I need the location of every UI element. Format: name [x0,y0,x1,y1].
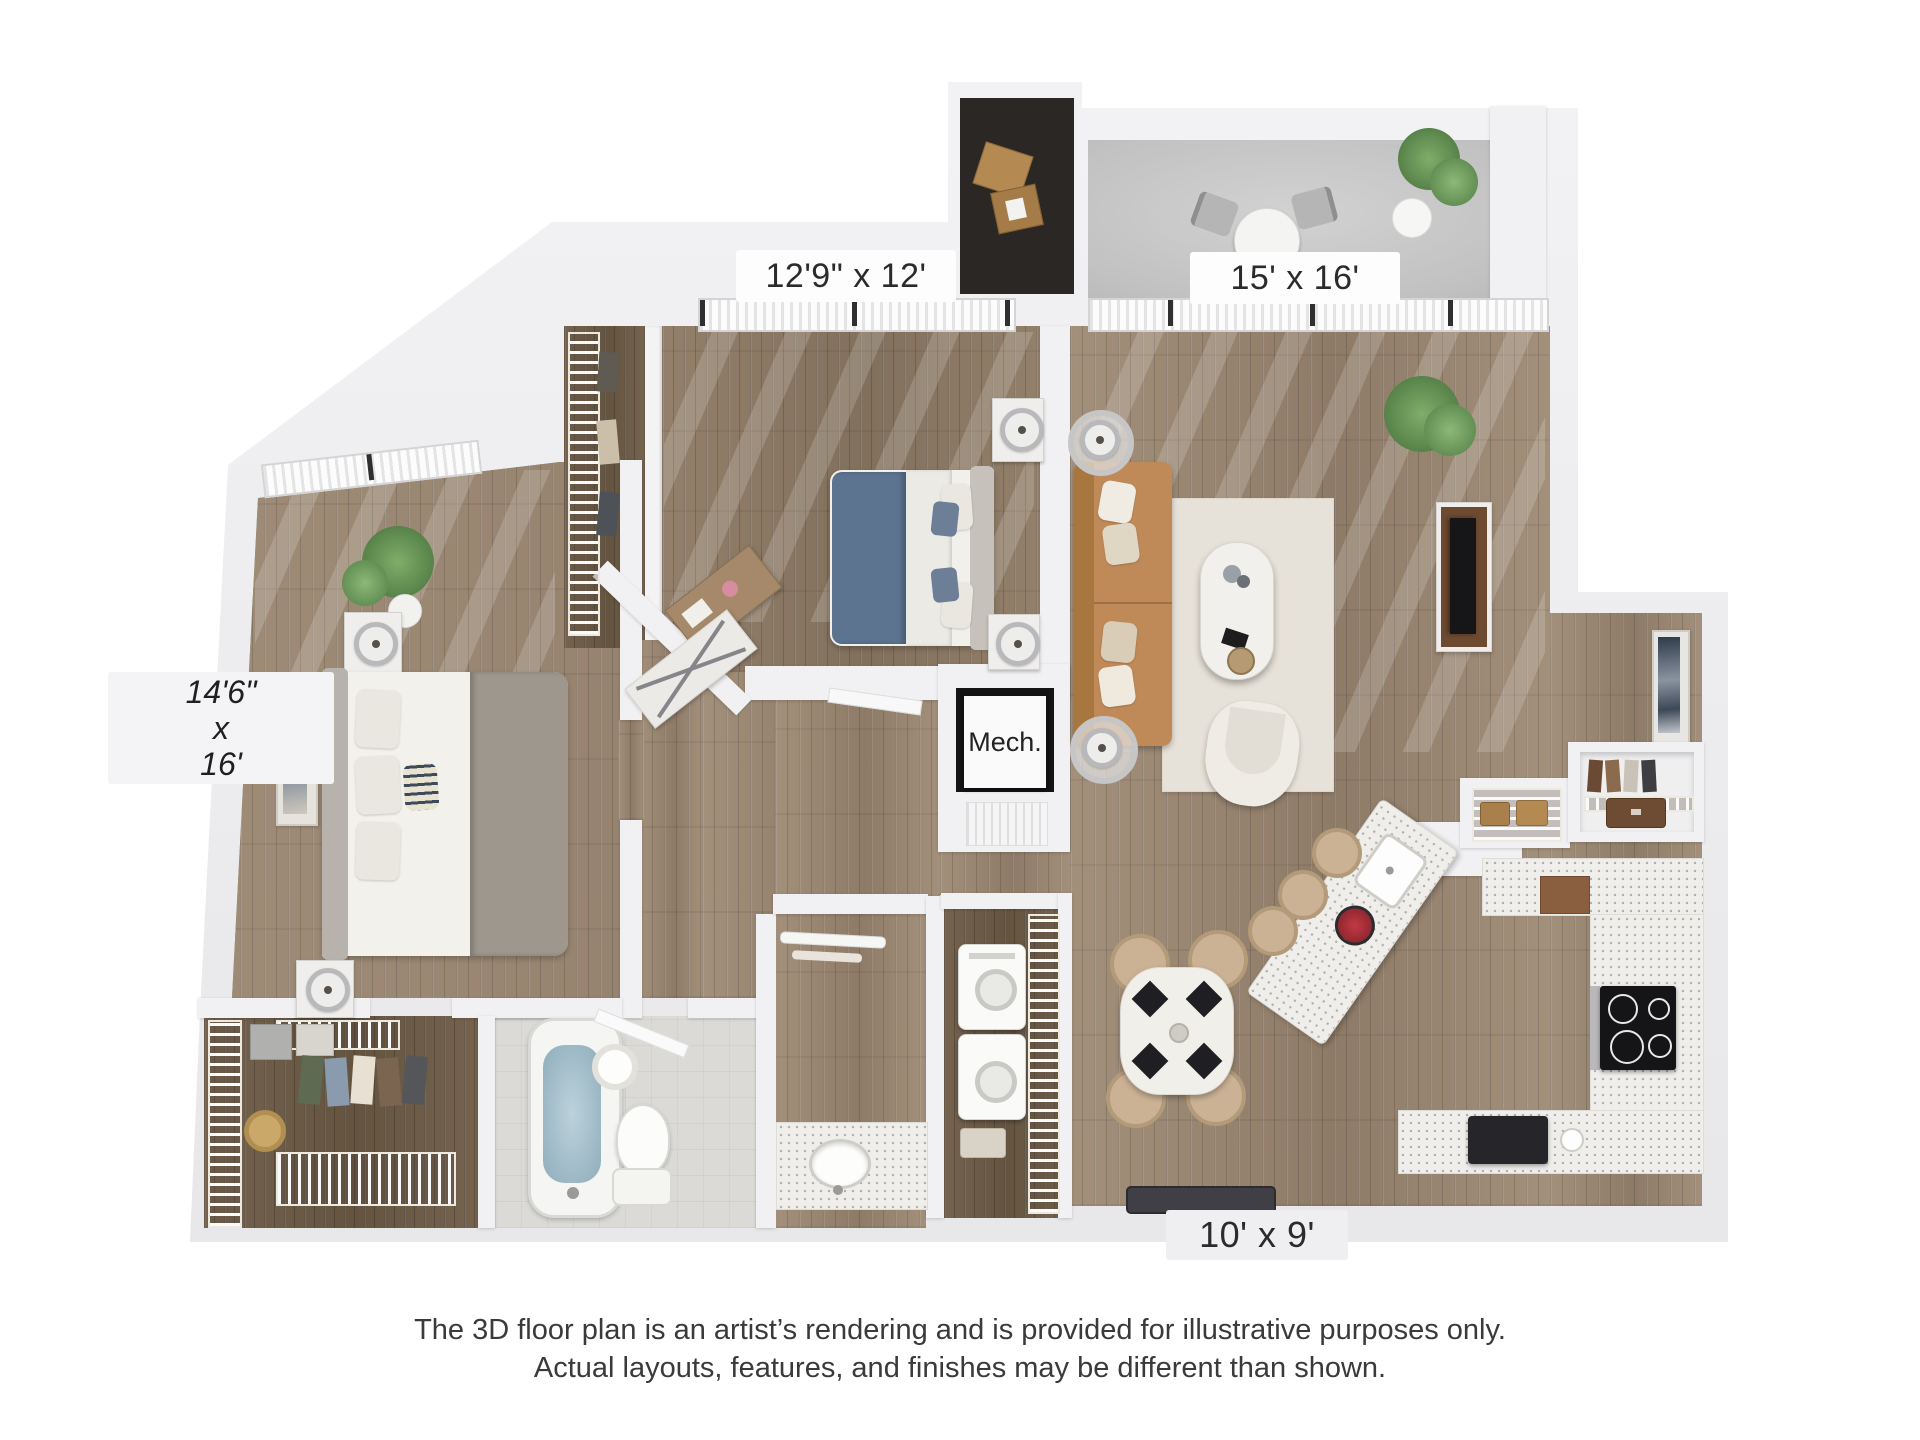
armchair-seat [1221,707,1285,778]
kitchen-counter-top-run [1482,858,1704,916]
bedroom2-blanket-blue [832,472,906,644]
tv-screen [1450,518,1476,634]
living-coffee-table [1200,542,1274,680]
walkin-hat [244,1110,286,1152]
pantry-shelf [1472,788,1562,842]
bedroom2-bed [830,470,994,646]
laundry-basket [960,1128,1006,1158]
master-bed [322,672,568,956]
dining-placemat [1186,981,1223,1018]
living-plant-leaves [1424,404,1476,456]
washer [958,944,1026,1030]
wall-closet-bath-divider [478,1016,495,1228]
entry-closet-interior [1580,752,1694,832]
wall-master-corridor-lower [620,820,642,1018]
walkin-clothes [350,1055,375,1104]
master-pillow [355,755,402,815]
burner [1648,998,1670,1020]
master-doorway-floor [618,720,644,820]
closet-clothes [1605,760,1621,793]
desk-flowers [719,578,741,600]
closet-clothes [1587,760,1603,793]
dining-centerpiece [1169,1023,1189,1043]
bedroom2-lamp-bottom [996,622,1040,666]
kitchen-counter-bottom-run [1398,1110,1704,1174]
master-dimension-label: 14'6" x 16' [108,672,334,784]
window-divider [366,454,374,480]
kitchen-sink [1351,831,1429,912]
sofa-pillow [1097,664,1136,708]
bedroom2-closet-shelf [568,332,600,636]
toilet-tank [612,1168,672,1206]
walkin-storage-box [296,1024,334,1056]
master-dimension-line2: x [186,710,257,746]
hall-to-living-floor [940,850,1072,895]
living-room-dimension-label: 15' x 16' [1190,252,1400,304]
walkin-clothes [376,1057,402,1107]
washer-panel [969,953,1015,959]
window-divider [852,300,857,326]
walkin-storage-box [250,1024,292,1060]
wall-bath-north-right [688,998,758,1018]
pantry-basket [1516,800,1548,826]
sofa-cushion-line [1094,602,1172,604]
walkin-shelf-left [208,1020,242,1228]
mech-unit: Mech. [964,696,1046,788]
master-lamp-bottom [306,968,350,1012]
sink-drain [1384,865,1395,876]
sofa-pillow [1101,522,1140,566]
stove-stainless-band [1590,986,1600,1070]
laundry-shelf [1028,914,1060,1214]
master-dimension-line3: 16' [186,746,257,782]
mech-label: Mech. [968,727,1042,758]
coffee-machine [1468,1116,1548,1164]
wall-laundry-north [941,893,1062,909]
closet-clothes [1641,760,1657,793]
dining-table [1120,967,1234,1095]
living-sofa [1074,462,1172,746]
closet-suitcase [1606,798,1666,828]
balcony-plant-pot [1392,198,1432,238]
bath-towel-roll [592,1044,638,1090]
master-dimension-text: 14'6" x 16' [186,674,257,782]
stove-cooktop [1600,986,1676,1070]
coffee-table-vase [1237,575,1250,588]
burner [1648,1034,1672,1058]
vanity-counter [776,1122,928,1210]
bathtub-faucet [567,1187,579,1199]
master-lamp-top [354,622,398,666]
bedroom2-closet-clothes [597,351,620,392]
window-divider [1448,300,1453,326]
kitchen-dimension-label: 10' x 9' [1166,1210,1348,1260]
window-divider [1005,300,1010,326]
entry-art-canvas [1658,637,1680,733]
floor-plan-canvas: Mech. [0,0,1920,1440]
entry-art-frame [1652,630,1690,744]
balcony-column [1490,106,1546,304]
window-divider [700,300,705,326]
toilet [616,1104,670,1174]
vanity-faucet [833,1185,843,1195]
bar-stool [1312,828,1362,878]
master-plant-leaves [342,560,388,606]
dining-placemat [1132,1043,1169,1080]
box-label [1005,198,1027,221]
bedroom2-dimension-text: 12'9" x 12' [766,257,927,296]
mech-louver-door [966,802,1048,846]
burner [1610,1030,1644,1064]
bedroom2-window [698,298,1016,332]
master-pillow [355,821,401,881]
closet-clothes [1623,760,1639,793]
vanity-sink [809,1139,871,1189]
bedroom2-closet-clothes [596,419,620,465]
dining-placemat [1132,981,1169,1018]
kitchen-small-appliance [1560,1128,1584,1152]
burner [1608,994,1638,1024]
walkin-shelf-bottom [276,1152,456,1206]
living-lamp-top [1080,420,1120,460]
kitchen-dimension-text: 10' x 9' [1199,1214,1315,1256]
bedroom2-lamp-top [1000,408,1044,452]
sofa-back [1074,462,1094,746]
pantry-basket [1480,802,1510,826]
walkin-clothes [298,1055,324,1105]
wall-vanity-laundry-divider [926,896,944,1218]
sofa-pillow [1097,479,1137,524]
kitchen-spice-shelf [1540,876,1590,914]
walkin-shelf-top [276,1020,400,1050]
bedroom2-dimension-label: 12'9" x 12' [736,250,956,302]
fruit-bowl [1327,898,1383,954]
bedroom2-accent-pillow [930,567,959,604]
walkin-clothes [402,1055,428,1105]
bar-stool [1248,906,1298,956]
wall-vanity-north [773,894,928,914]
dining-placemat [1186,1043,1223,1080]
balcony-plant-leaves [1430,158,1478,206]
walkin-clothes [324,1057,349,1106]
disclaimer-line-2: Actual layouts, features, and finishes m… [0,1352,1920,1385]
coffee-table-tray [1227,647,1255,675]
bedroom2-accent-pillow [930,501,959,538]
wall-bath-vanity-divider [756,914,776,1228]
master-pillow [355,689,402,749]
window-divider [1168,300,1173,326]
living-lamp-bottom [1082,728,1122,768]
dryer-door [975,1061,1017,1103]
master-bed-throw [470,672,568,956]
suitcase-handle [1631,809,1641,815]
sofa-pillow [1100,620,1138,663]
master-accent-pillow [402,763,439,811]
washer-door [975,969,1017,1011]
disclaimer-line-1: The 3D floor plan is an artist’s renderi… [0,1314,1920,1347]
bedroom2-closet-clothes [596,491,620,537]
wall-laundry-east [1058,893,1072,1218]
master-dimension-line1: 14'6" [186,674,257,710]
living-room-dimension-text: 15' x 16' [1230,259,1359,298]
dryer [958,1034,1026,1120]
